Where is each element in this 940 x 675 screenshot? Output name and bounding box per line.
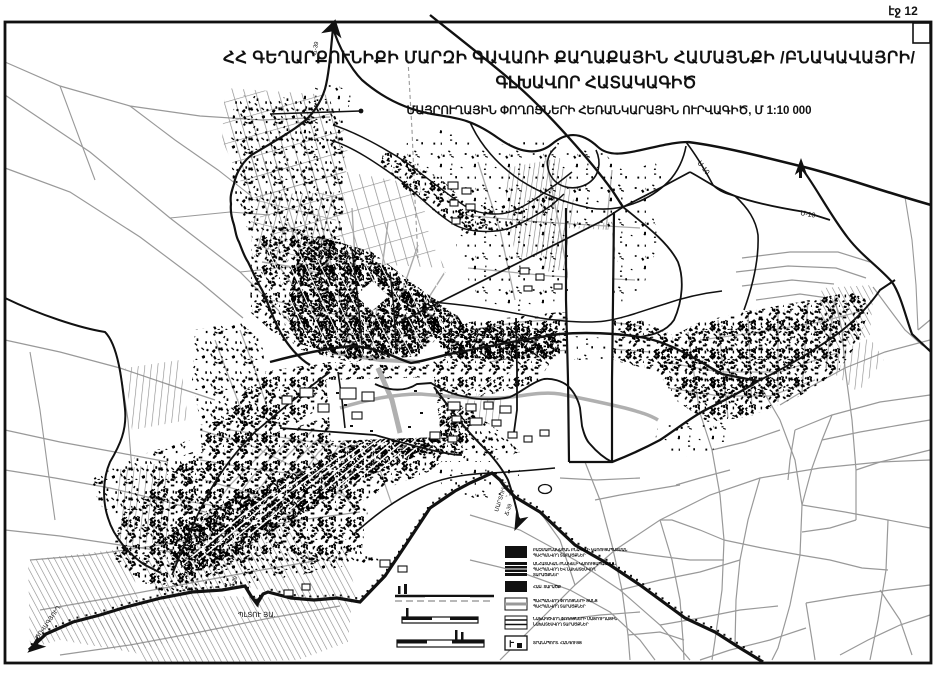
svg-text:ՊԼՏՈՒ ՅԱ.: ՊԼՏՈՒ ՅԱ. bbox=[238, 611, 276, 619]
svg-text:ԳԼԽԱՎՈՐ ՀԱՏԱԿԱԳԻԾ: ԳԼԽԱՎՈՐ ՀԱՏԱԿԱԳԻԾ bbox=[496, 74, 697, 92]
svg-text:ՀԱՍ. ՏԱՐԱԾՔ: ՀԱՍ. ՏԱՐԱԾՔ bbox=[533, 584, 561, 589]
svg-text:ՄԱՅՐՈՒՂԱՅԻՆ ՓՈՂՈՑՆԵՐԻ ՀԵՌԱՆԿԱՐ: ՄԱՅՐՈՒՂԱՅԻՆ ՓՈՂՈՑՆԵՐԻ ՀԵՌԱՆԿԱՐԱՅԻՆ ՈՒՐՎԱ… bbox=[407, 104, 812, 117]
svg-text:ՆԱԽԱԳԾՎՈՂ ՓՈՂՈՑՆԵՐԻ ՄԱՅՐՈՒՂԱՅԻ: ՆԱԽԱԳԾՎՈՂ ՓՈՂՈՑՆԵՐԻ ՄԱՅՐՈՒՂԱՅԻՆ bbox=[532, 616, 617, 621]
svg-text:ԱՆՀԱՏԱԿԱՆ ԲՆԱԿԵԼԻ ԿԱՌՈՒՑԱՊԱՏՄԱ: ԱՆՀԱՏԱԿԱՆ ԲՆԱԿԵԼԻ ԿԱՌՈՒՑԱՊԱՏՄԱՆ bbox=[533, 561, 616, 566]
svg-text:ՀՀ ԳԵՂԱՐՔՈՒՆԻՔԻ ՄԱՐԶԻ ԳԱՎԱՌԻ Ք: ՀՀ ԳԵՂԱՐՔՈՒՆԻՔԻ ՄԱՐԶԻ ԳԱՎԱՌԻ ՔԱՂԱՔԱՅԻՆ Հ… bbox=[223, 49, 915, 67]
svg-text:ԲԱԶՄԱԲՆԱԿԱՐԱՆ ԲՆԱԿԵԼԻ ԿԱՌՈՒՑԱՊ: ԲԱԶՄԱԲՆԱԿԱՐԱՆ ԲՆԱԿԵԼԻ ԿԱՌՈՒՑԱՊԱՏՄԱՆ bbox=[533, 547, 628, 552]
svg-text:ՏՐԱՆՍՊՈՐՏ. ՀԱՆԳՈՒՅՑ: ՏՐԱՆՍՊՈՐՏ. ՀԱՆԳՈՒՅՑ bbox=[533, 640, 582, 645]
svg-text:ՏԱՐԱԾՔՆԵՐ: ՏԱՐԱԾՔՆԵՐ bbox=[533, 572, 559, 577]
svg-text:ՆԱԽԱՏԵՍՎՈՂ ՏԱՐԱԾՔՆԵՐ: ՆԱԽԱՏԵՍՎՈՂ ՏԱՐԱԾՔՆԵՐ bbox=[532, 622, 589, 627]
svg-text:ՊԱՀՊԱՆՎՈՂ ՓՈՂՈՑՆԵՐԻ ՑԱՆՑ: ՊԱՀՊԱՆՎՈՂ ՓՈՂՈՑՆԵՐԻ ՑԱՆՑ bbox=[533, 598, 598, 603]
svg-text:էջ 12: էջ 12 bbox=[888, 4, 918, 18]
svg-text:ՊԱՀՊԱՆՎՈՂ ՏԱՐԱԾՔՆԵՐ: ՊԱՀՊԱՆՎՈՂ ՏԱՐԱԾՔՆԵՐ bbox=[533, 604, 586, 609]
svg-text:ՊԱՀՊԱՆՎՈՂ ԵՎ ՆԱԽԱՏԵՍՎՈՂ: ՊԱՀՊԱՆՎՈՂ ԵՎ ՆԱԽԱՏԵՍՎՈՂ bbox=[533, 567, 597, 572]
svg-text:ՊԱՀՊԱՆՎՈՂ ՏԱՐԱԾՔՆԵՐ: ՊԱՀՊԱՆՎՈՂ ՏԱՐԱԾՔՆԵՐ bbox=[533, 553, 586, 558]
